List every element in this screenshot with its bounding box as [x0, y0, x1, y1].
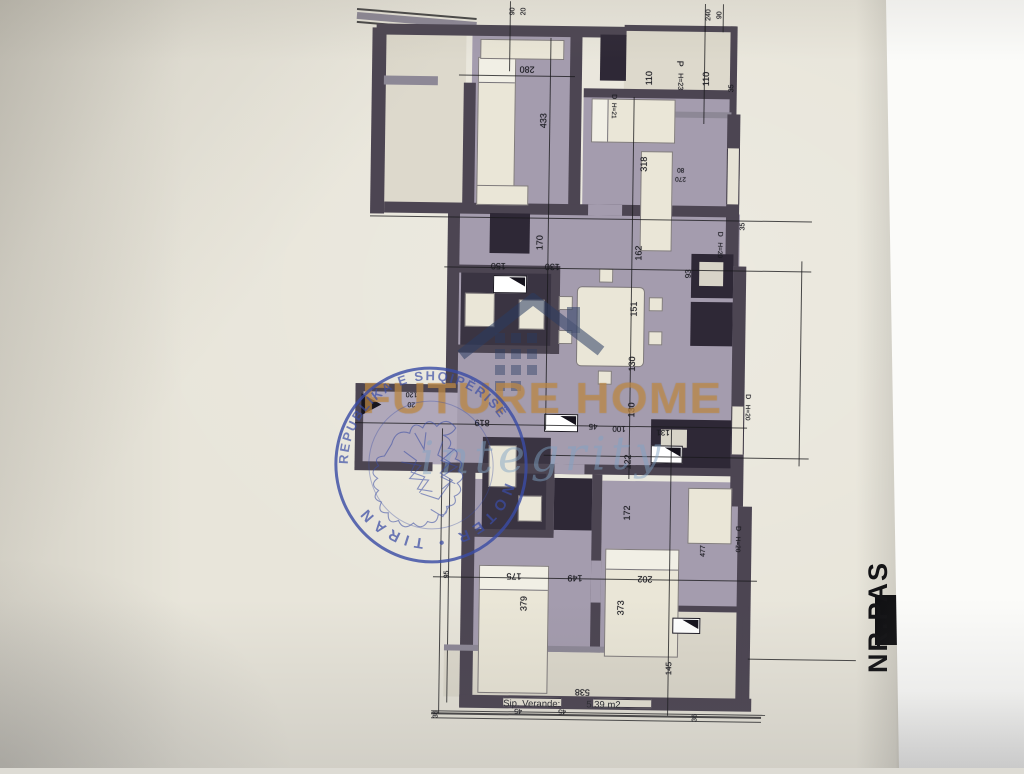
veranda-area-label: Sip. Verande:5.39 m2: [503, 698, 621, 711]
bed: [476, 57, 516, 194]
chair: [648, 331, 662, 345]
dim-label: H=23: [676, 73, 683, 90]
dim-label: 170: [535, 235, 545, 250]
veranda-label-text: Sip. Verande:: [503, 698, 560, 710]
dim-label: 433: [538, 113, 548, 128]
dim-label: 318: [639, 157, 649, 172]
dim-label: 175: [506, 571, 521, 581]
dim-label: 151: [629, 301, 639, 316]
window-sill: [384, 76, 438, 86]
room-floor-balcony-left: [380, 29, 467, 210]
bed-pillow: [592, 99, 608, 141]
wardrobe-top: [480, 39, 564, 60]
notary-stamp: REPUBLIKA E SHQIPËRISË NOTER • TIRANË: [328, 360, 534, 570]
veranda-area-value: 5.39 m2: [586, 699, 620, 710]
wardrobe: [687, 488, 732, 545]
dim-label: 110: [701, 72, 711, 86]
dim-label: 172: [622, 505, 632, 520]
dim-label: 110: [644, 71, 654, 85]
dresser: [476, 185, 528, 206]
door-opening: [588, 204, 622, 215]
dim-label: 270: [675, 175, 686, 182]
chair: [599, 269, 613, 283]
kitchen-unit: [690, 302, 733, 347]
window: [726, 148, 740, 204]
kitchen-appliance: [699, 262, 723, 286]
dim-label: 80: [677, 166, 684, 173]
dim-label: 36: [432, 710, 439, 718]
stamp-arc-top-text: REPUBLIKA E SHQIPËRISË: [328, 360, 513, 468]
dim-label: H=21: [610, 103, 617, 119]
wall-segment: [370, 27, 387, 213]
wall-segment: [568, 30, 583, 212]
dim-label: 149: [567, 573, 582, 583]
stamp-arc-bottom-text: NOTER • TIRANË: [328, 360, 528, 570]
dim-label: D: [610, 94, 617, 99]
dim-label: 538: [575, 687, 590, 697]
wall-segment: [462, 83, 476, 211]
bed: [477, 565, 549, 694]
side-title-text: NR.PAS: [863, 561, 894, 673]
dim-label: 130: [545, 262, 560, 272]
dim-label: 280: [519, 64, 534, 74]
dimension-line: [799, 261, 803, 466]
door-symbol: [672, 618, 700, 634]
dim-label: 130: [627, 356, 637, 371]
dim-label: 202: [637, 574, 652, 584]
dim-label: 95: [443, 570, 450, 578]
sheet-side-title: NR.PAS: [845, 595, 905, 745]
dimension-labels-layer: 90202409028011011035PH=23DH=214333188027…: [5, 0, 1024, 7]
svg-text:NOTER • TIRANË: NOTER • TIRANË: [328, 360, 528, 570]
dim-label: P: [675, 61, 685, 67]
dim-label: D: [716, 232, 723, 237]
chair: [649, 297, 663, 311]
dim-label: 477: [700, 545, 707, 557]
dim-label: 35: [728, 84, 735, 92]
extension-line: [748, 659, 856, 662]
bed-pillow: [606, 550, 678, 571]
veranda-parapet: [729, 26, 737, 118]
wardrobe: [554, 478, 593, 531]
dim-label: 35: [739, 223, 746, 231]
photographed-paper-sheet: 90202409028011011035PH=23DH=214333188027…: [0, 0, 1024, 768]
dim-label: 240: [705, 9, 712, 21]
dim-label: 145: [664, 662, 673, 675]
door-symbol: [493, 275, 527, 293]
dim-label: 90: [509, 7, 516, 15]
dim-label: 373: [615, 600, 625, 615]
dim-label: 93: [684, 269, 693, 278]
dim-label: 90: [716, 11, 723, 19]
dim-label: 36: [691, 714, 698, 722]
shaft-block: [600, 35, 627, 81]
dim-label: H=20: [716, 242, 723, 258]
dim-label: H=20: [734, 537, 741, 553]
wardrobe: [489, 213, 530, 254]
svg-text:REPUBLIKA E SHQIPËRISË: REPUBLIKA E SHQIPËRISË: [328, 360, 513, 468]
dim-label: 150: [491, 261, 506, 271]
dim-label: D: [734, 526, 741, 531]
dim-label: 379: [518, 596, 528, 611]
door-opening: [591, 560, 602, 602]
dim-label: 20: [520, 8, 527, 16]
dim-label: 162: [633, 246, 643, 261]
